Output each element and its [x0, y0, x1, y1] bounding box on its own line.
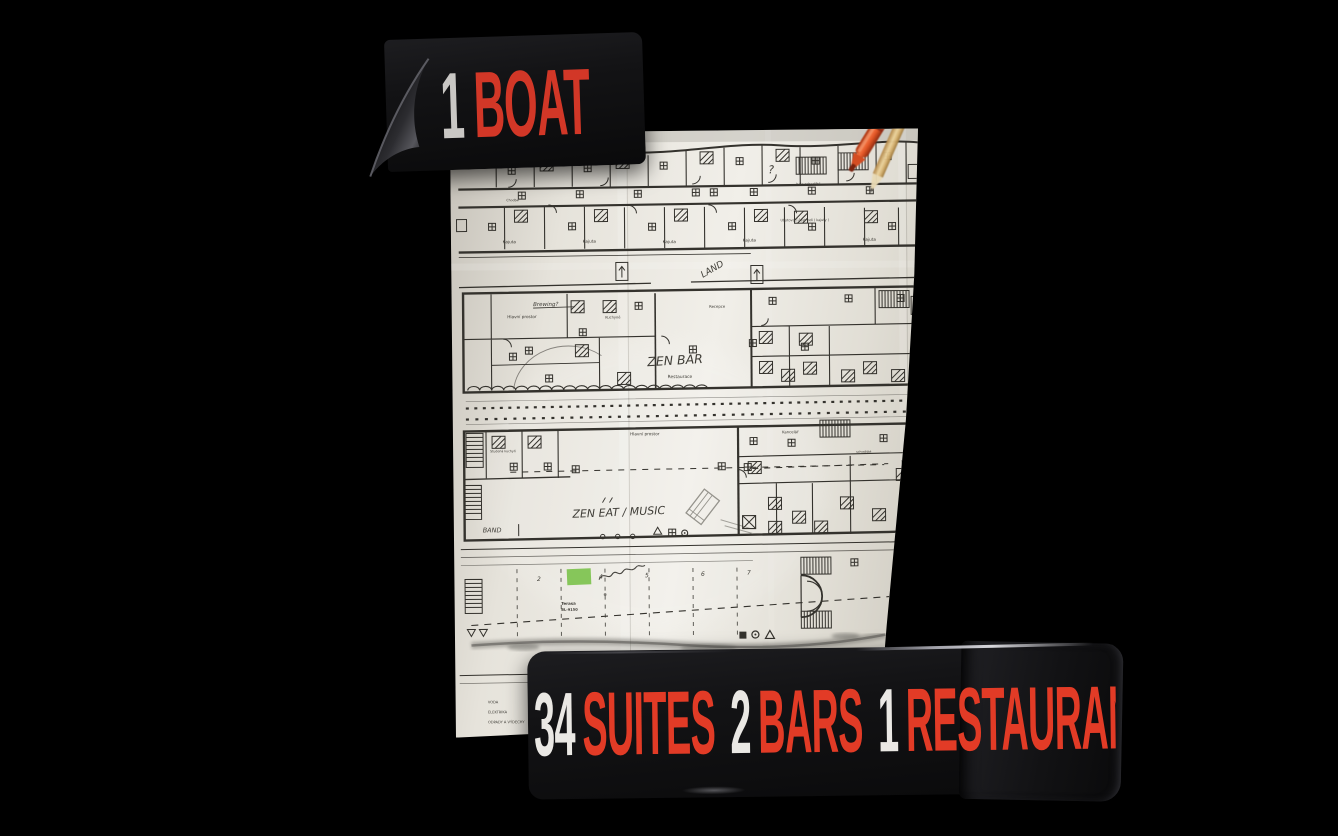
stairs-label: schodiště	[856, 450, 871, 454]
cabin-label: Kajuta	[663, 239, 677, 244]
cabin-label: Kajuta	[743, 238, 757, 243]
reception-label: Recepce	[709, 304, 726, 309]
legend-label: ELEKTRIKA	[488, 710, 508, 714]
suites-count: 34	[533, 675, 575, 775]
bars-segment: 2BARS	[730, 676, 879, 768]
legend-label: VODA	[488, 700, 499, 704]
restaurant-count: 1	[877, 671, 899, 771]
office-label: Kancelář	[782, 429, 799, 434]
cabin-section-label: Ubytovací část lodi ( kajuty )	[781, 218, 830, 222]
green-highlight	[567, 568, 592, 585]
corridor-label: Chodba	[506, 198, 518, 202]
suites-segment: 34SUITES	[533, 678, 730, 770]
suites-word: SUITES	[582, 673, 716, 775]
cold-kitchen-label: Studená kuchyň	[490, 449, 516, 453]
legend-label: ODPADY A VÝDECHY	[488, 719, 525, 724]
zen-bar-deck: Brewing? Hlavní prostor Kuchyně ZEN BAR …	[463, 286, 918, 392]
bars-count: 2	[730, 673, 752, 773]
boat-word: BOAT	[472, 55, 591, 153]
kitchen-label: Kuchyně	[605, 315, 621, 319]
restaurant-word: RESTAURANT	[905, 668, 1117, 771]
top-banner: 1BOAT	[384, 32, 646, 172]
floor-plan-drawing: Chodba Kajuta Kajuta Kajuta Kajuta Kajut…	[450, 128, 924, 737]
terrace-code: BL-9150	[561, 608, 578, 612]
cabin-label: Kajuta	[503, 239, 517, 244]
floor-plan-photo: Chodba Kajuta Kajuta Kajuta Kajuta Kajut…	[450, 128, 924, 737]
handwritten-band: BAND	[483, 526, 502, 534]
adjacent-sheet-fragment	[908, 164, 924, 450]
stair-hall-label: hala schodiště	[796, 182, 820, 186]
bars-word: BARS	[758, 672, 864, 773]
terrace-col-number: 7	[747, 570, 751, 577]
restaurant-label: Restaurace	[668, 374, 693, 380]
terrace-col-number: 6	[701, 571, 705, 578]
main-space-label: Hlavní prostor	[507, 314, 537, 319]
main-space-label-2: Hlavní prostor	[630, 431, 660, 436]
handwritten-question-mark: ?	[768, 163, 774, 176]
terrace-label: Terasa	[561, 601, 576, 606]
bottom-banner-text: 34SUITES2BARS1RESTAURANT	[527, 644, 1117, 799]
restaurant-segment: 1RESTAURANT	[877, 673, 1117, 766]
top-banner-text: 1BOAT	[384, 32, 646, 172]
video-frame: Chodba Kajuta Kajuta Kajuta Kajuta Kajut…	[0, 0, 1338, 836]
bottom-banner: 34SUITES2BARS1RESTAURANT	[527, 644, 1117, 799]
cabin-label: Kajuta	[583, 239, 597, 244]
terrace-col-number: 5	[645, 572, 649, 579]
boat-count: 1	[439, 59, 465, 154]
cabin-label: Kajuta	[863, 237, 877, 242]
terrace-col-number: 2	[537, 576, 541, 583]
